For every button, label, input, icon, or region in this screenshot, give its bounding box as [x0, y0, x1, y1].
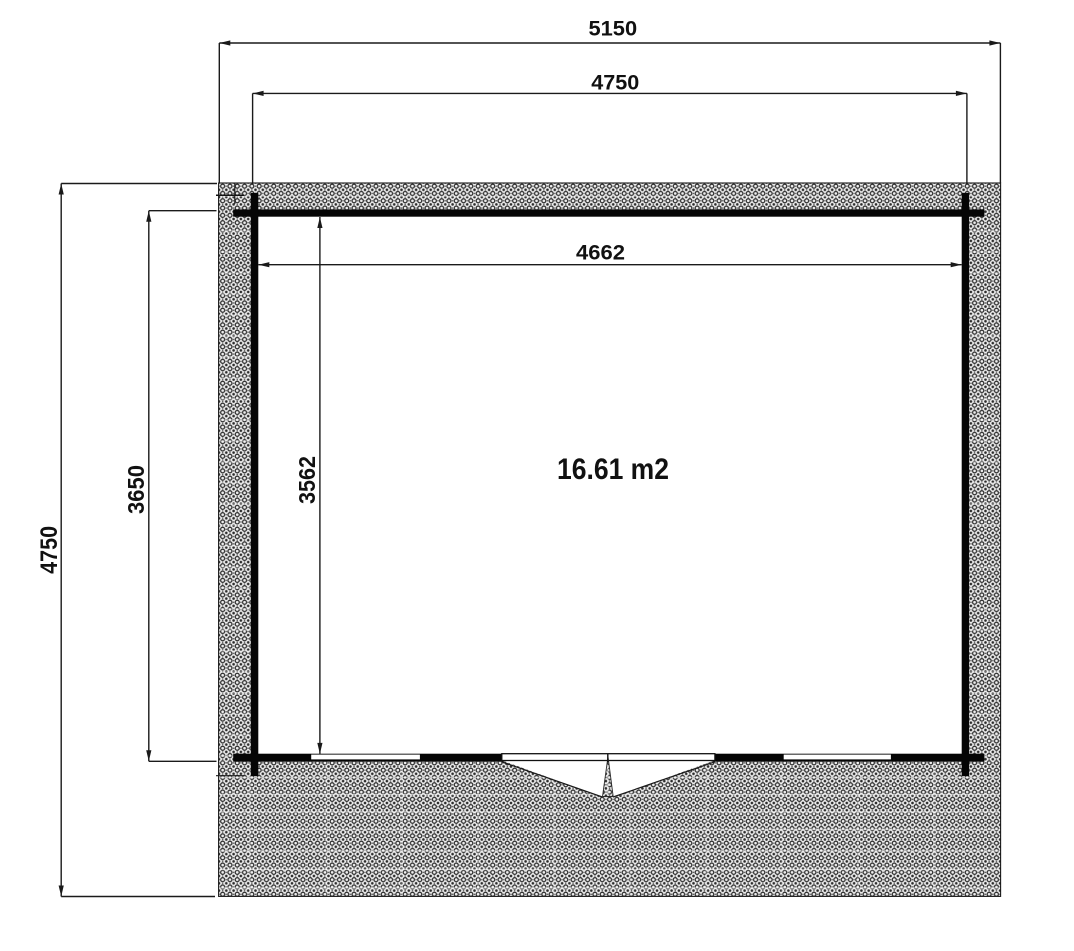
- svg-text:4662: 4662: [576, 241, 625, 265]
- svg-text:3562: 3562: [294, 456, 320, 504]
- svg-text:4750: 4750: [591, 71, 639, 95]
- svg-text:3650: 3650: [123, 465, 149, 514]
- svg-text:16.61 m2: 16.61 m2: [557, 453, 669, 486]
- svg-text:4750: 4750: [36, 526, 63, 574]
- svg-text:5150: 5150: [589, 16, 638, 40]
